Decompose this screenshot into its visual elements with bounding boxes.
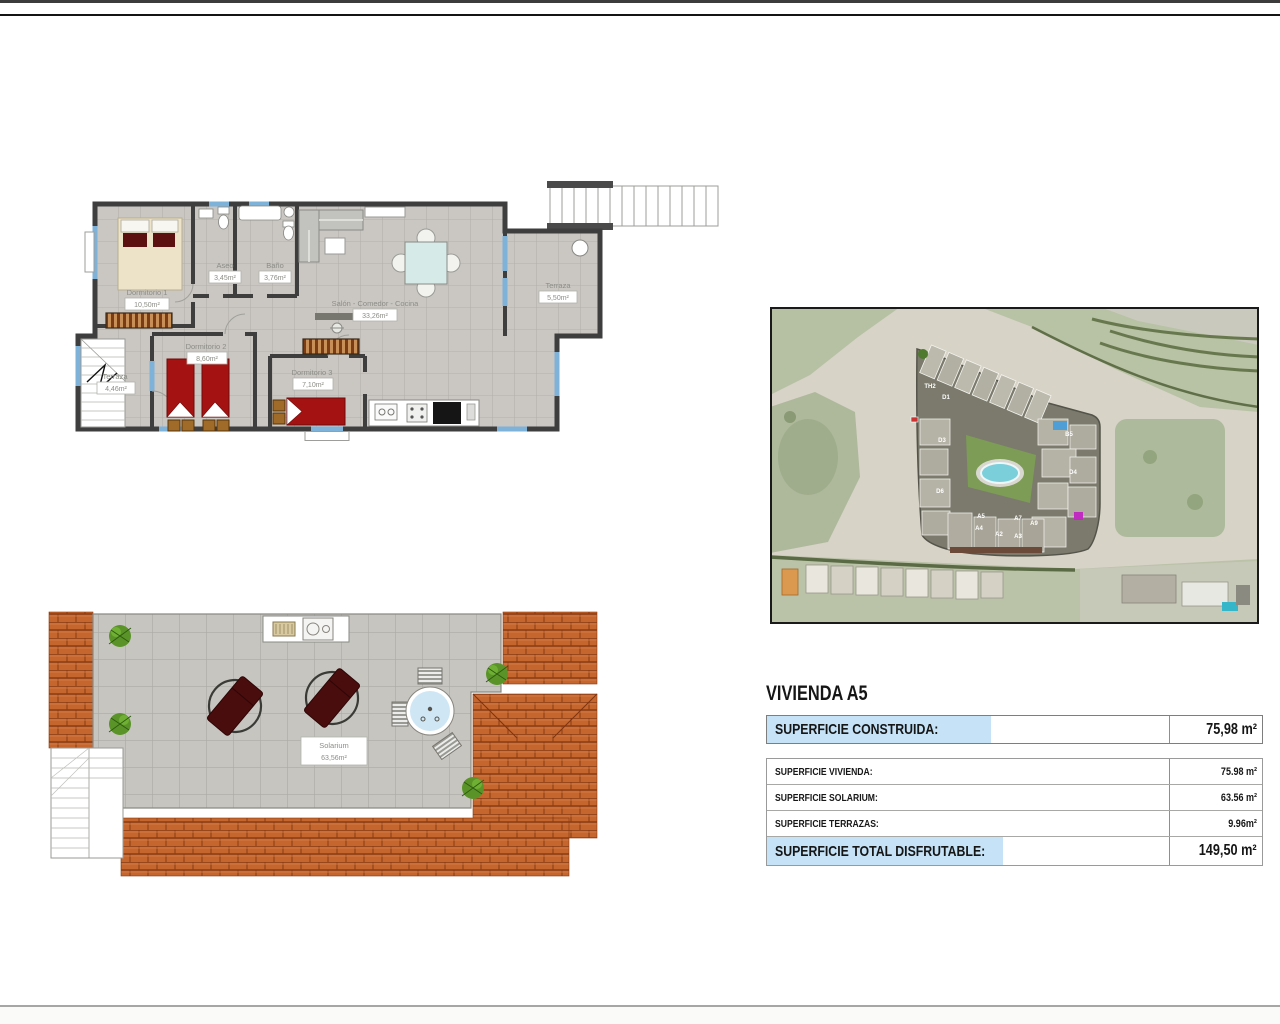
plant-bottom-right: [462, 777, 484, 799]
svg-text:A7: A7: [1014, 516, 1022, 522]
room-label-dormitorio-2: Dormitorio 2 8,60m²: [186, 342, 227, 364]
svg-text:33,26m²: 33,26m²: [362, 313, 388, 320]
swimming-pool: [981, 463, 1019, 483]
page-top-bar: [0, 0, 1280, 3]
svg-text:4,46m²: 4,46m²: [105, 386, 127, 393]
terrace-table: [572, 240, 588, 256]
ac-unit: [315, 313, 353, 320]
svg-text:Solarium: Solarium: [319, 741, 349, 750]
svg-text:Aseo: Aseo: [216, 261, 233, 270]
svg-text:A3: A3: [1014, 534, 1022, 540]
svg-text:A9: A9: [1030, 521, 1038, 527]
svg-text:D6: D6: [936, 489, 944, 495]
wardrobe-dormitorio-3: [303, 339, 359, 354]
svg-text:63,56m²: 63,56m²: [321, 755, 347, 762]
row-superficie-solarium: SUPERFICIE SOLARIUM: 63.56 m²: [767, 784, 1262, 810]
svg-text:Terraza: Terraza: [102, 372, 128, 381]
room-label-dormitorio-1: Dormitorio 1 10,50m²: [125, 288, 169, 310]
page-bottom-strip: [0, 1007, 1280, 1024]
svg-text:Dormitorio 1: Dormitorio 1: [127, 288, 168, 297]
construida-label-cell: SUPERFICIE CONSTRUIDA:: [767, 716, 991, 743]
solarium-plan: Solarium 63,56m²: [45, 606, 601, 878]
svg-text:B5: B5: [1065, 432, 1073, 438]
svg-text:10,50m²: 10,50m²: [134, 302, 160, 309]
bed-dormitorio-1: [118, 218, 182, 290]
entry-porch: [305, 432, 349, 441]
svg-text:D4: D4: [1069, 470, 1077, 476]
surface-detail-table: SUPERFICIE VIVIENDA: 75.98 m² SUPERFICIE…: [766, 758, 1263, 866]
svg-text:Dormitorio 2: Dormitorio 2: [186, 342, 227, 351]
svg-text:A4: A4: [975, 526, 983, 532]
room-label-dormitorio-3: Dormitorio 3 7,10m²: [292, 368, 333, 390]
coffee-table: [325, 238, 345, 254]
outdoor-kitchen: [263, 616, 349, 642]
row-superficie-terrazas: SUPERFICIE TERRAZAS: 9.96m²: [767, 810, 1262, 836]
page-header-rule: [0, 14, 1280, 16]
pergola-magenta: [1074, 512, 1083, 520]
svg-text:A2: A2: [995, 532, 1003, 538]
aerial-map: TH2 D1 D3 D6 B5 D4 A7 A9 A5 A4 A2 A3: [770, 307, 1259, 624]
solarium-label: Solarium 63,56m²: [301, 737, 367, 765]
bed-dormitorio-3: [273, 398, 345, 425]
rooftop-pool: [1053, 421, 1067, 430]
construida-spacer: [991, 716, 1169, 743]
plan-sheet: Dormitorio 1 10,50m² Aseo 3,45m² Baño 3,…: [0, 0, 1280, 1024]
row-superficie-construida: SUPERFICIE CONSTRUIDA: 75,98 m²: [766, 715, 1263, 744]
plant-mid-left: [109, 713, 131, 735]
kitchen-counter: [369, 400, 479, 426]
row-superficie-total: SUPERFICIE TOTAL DISFRUTABLE: 149,50 m²: [767, 836, 1262, 865]
field-right: [1115, 419, 1225, 537]
flag-marker: [911, 417, 918, 422]
svg-text:3,45m²: 3,45m²: [214, 275, 236, 282]
construida-value-cell: 75,98 m²: [1169, 716, 1262, 743]
total-value-cell: 149,50 m²: [1169, 837, 1262, 865]
plant-top-left: [109, 625, 131, 647]
exterior-stairs: [547, 181, 718, 230]
svg-text:Salón - Comedor - Cocina: Salón - Comedor - Cocina: [332, 299, 420, 308]
floor-plan: Dormitorio 1 10,50m² Aseo 3,45m² Baño 3,…: [75, 176, 725, 442]
surface-panel: VIVIENDA A5 SUPERFICIE CONSTRUIDA: 75,98…: [766, 682, 1263, 866]
svg-text:7,10m²: 7,10m²: [302, 382, 324, 389]
svg-text:5,50m²: 5,50m²: [547, 295, 569, 302]
window-shutter-box: [85, 232, 94, 272]
tv-unit: [365, 207, 405, 217]
svg-text:TH2: TH2: [924, 384, 936, 390]
wardrobe-dormitorio-1: [106, 313, 172, 328]
svg-text:Terraza: Terraza: [545, 281, 571, 290]
svg-text:A5: A5: [977, 514, 985, 520]
svg-text:Dormitorio 3: Dormitorio 3: [292, 368, 333, 377]
palm-tree: [918, 349, 928, 359]
svg-text:8,60m²: 8,60m²: [196, 356, 218, 363]
svg-text:3,76m²: 3,76m²: [264, 275, 286, 282]
plant-right: [486, 663, 508, 685]
svg-text:D3: D3: [938, 438, 946, 444]
row-superficie-vivienda: SUPERFICIE VIVIENDA: 75.98 m²: [767, 759, 1262, 784]
total-label-cell: SUPERFICIE TOTAL DISFRUTABLE:: [767, 837, 1003, 865]
solarium-stairs: [51, 748, 123, 858]
page-title: VIVIENDA A5: [766, 682, 1263, 706]
svg-text:Baño: Baño: [266, 261, 284, 270]
svg-text:D1: D1: [942, 395, 950, 401]
